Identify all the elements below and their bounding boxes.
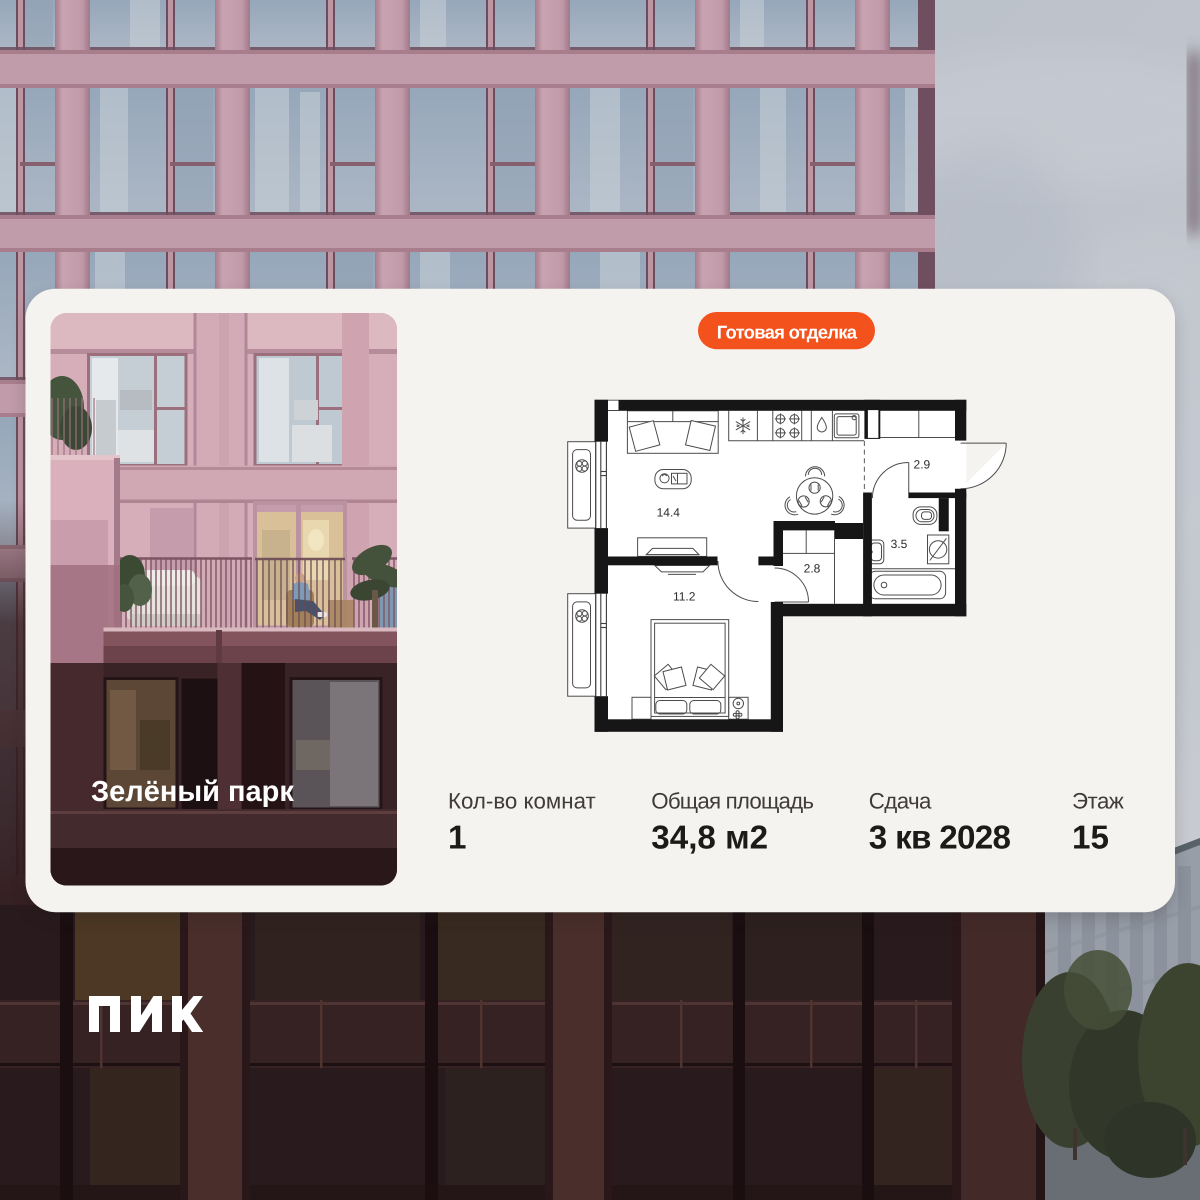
svg-text:Зелёный парк: Зелёный парк bbox=[91, 776, 294, 808]
svg-text:Общая площадь: Общая площадь bbox=[651, 788, 813, 813]
svg-text:Этаж: Этаж bbox=[1072, 788, 1124, 813]
svg-text:3.5: 3.5 bbox=[891, 537, 908, 551]
svg-text:3 кв 2028: 3 кв 2028 bbox=[869, 819, 1011, 856]
svg-text:1: 1 bbox=[448, 819, 466, 856]
svg-text:2.8: 2.8 bbox=[804, 562, 821, 576]
svg-text:Кол-во комнат: Кол-во комнат bbox=[448, 788, 596, 813]
svg-text:15: 15 bbox=[1072, 819, 1109, 856]
svg-text:Готовая отделка: Готовая отделка bbox=[717, 322, 858, 343]
svg-text:34,8 м2: 34,8 м2 bbox=[651, 819, 768, 856]
svg-text:14.4: 14.4 bbox=[657, 506, 681, 520]
svg-text:2.9: 2.9 bbox=[914, 458, 931, 472]
svg-text:11.2: 11.2 bbox=[673, 589, 696, 603]
svg-text:Сдача: Сдача bbox=[869, 788, 932, 813]
